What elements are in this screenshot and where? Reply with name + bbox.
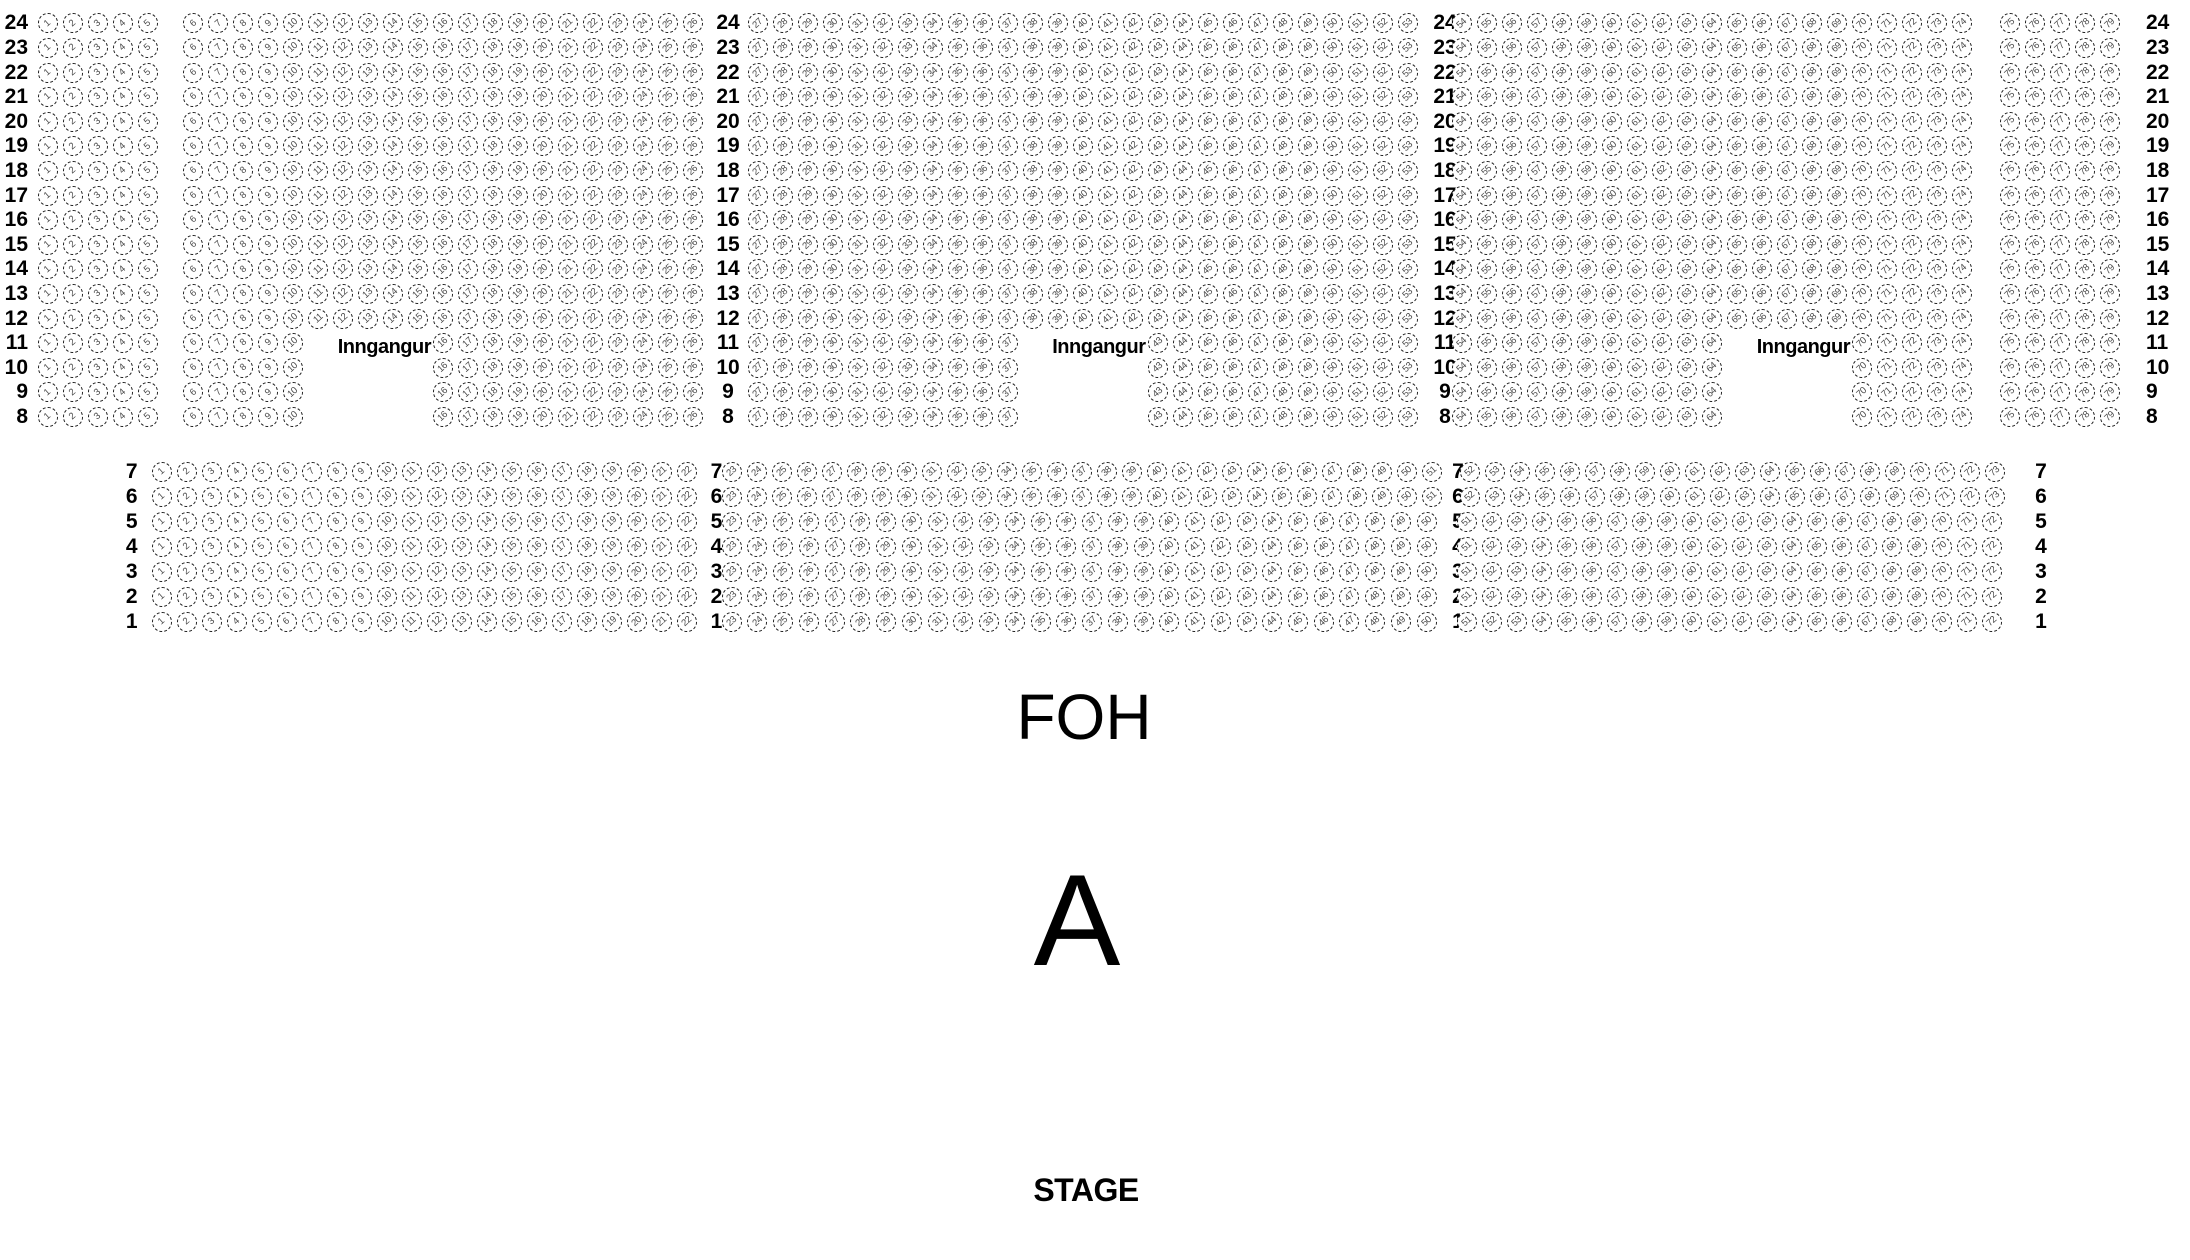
seat[interactable]: 13 [358, 136, 378, 156]
seat[interactable]: 70 [1852, 259, 1872, 279]
seat[interactable]: 40 [1073, 259, 1093, 279]
seat[interactable]: 79 [2100, 63, 2120, 83]
seat[interactable]: 42 [1123, 136, 1143, 156]
seat[interactable]: 53 [1398, 161, 1418, 181]
seat[interactable]: 28 [773, 309, 793, 329]
seat[interactable]: 26 [799, 537, 819, 557]
seat[interactable]: 71 [1957, 562, 1977, 582]
seat[interactable]: 25 [658, 186, 678, 206]
seat[interactable]: 16 [527, 587, 547, 607]
seat[interactable]: 61 [1627, 63, 1647, 83]
seat[interactable]: 68 [1802, 136, 1822, 156]
seat[interactable]: 68 [1882, 562, 1902, 582]
seat[interactable]: 77 [2050, 161, 2070, 181]
seat[interactable]: 55 [1557, 537, 1577, 557]
seat[interactable]: 41 [1098, 38, 1118, 58]
seat[interactable]: 4 [113, 235, 133, 255]
seat[interactable]: 30 [902, 587, 922, 607]
seat[interactable]: 49 [1298, 161, 1318, 181]
seat[interactable]: 76 [2025, 235, 2045, 255]
seat[interactable]: 71 [1957, 612, 1977, 632]
seat[interactable]: 5 [252, 562, 272, 582]
seat[interactable]: 59 [1635, 487, 1655, 507]
seat[interactable]: 19 [508, 259, 528, 279]
seat[interactable]: 2 [63, 358, 83, 378]
seat[interactable]: 25 [658, 382, 678, 402]
seat[interactable]: 45 [1198, 186, 1218, 206]
seat[interactable]: 20 [533, 161, 553, 181]
seat[interactable]: 6 [277, 562, 297, 582]
seat[interactable]: 61 [1685, 487, 1705, 507]
seat[interactable]: 6 [183, 38, 203, 58]
seat[interactable]: 59 [1577, 87, 1597, 107]
seat[interactable]: 3 [202, 562, 222, 582]
seat[interactable]: 24 [633, 358, 653, 378]
seat[interactable]: 55 [1477, 87, 1497, 107]
seat[interactable]: 51 [1457, 537, 1477, 557]
seat[interactable]: 28 [847, 462, 867, 482]
seat[interactable]: 38 [1108, 562, 1128, 582]
seat[interactable]: 67 [1777, 309, 1797, 329]
seat[interactable]: 51 [1348, 284, 1368, 304]
seat[interactable]: 10 [283, 63, 303, 83]
seat[interactable]: 33 [898, 382, 918, 402]
seat[interactable]: 16 [433, 407, 453, 427]
seat[interactable]: 56 [1502, 358, 1522, 378]
seat[interactable]: 20 [533, 63, 553, 83]
seat[interactable]: 77 [2050, 235, 2070, 255]
seat[interactable]: 37 [998, 382, 1018, 402]
seat[interactable]: 6 [183, 235, 203, 255]
seat[interactable]: 73 [1927, 309, 1947, 329]
seat[interactable]: 5 [138, 358, 158, 378]
seat[interactable]: 5 [138, 284, 158, 304]
seat[interactable]: 24 [633, 333, 653, 353]
seat[interactable]: 70 [1932, 587, 1952, 607]
seat[interactable]: 7 [208, 112, 228, 132]
seat[interactable]: 38 [1023, 136, 1043, 156]
seat[interactable]: 2 [177, 512, 197, 532]
seat[interactable]: 34 [923, 407, 943, 427]
seat[interactable]: 10 [283, 186, 303, 206]
seat[interactable]: 31 [848, 259, 868, 279]
seat[interactable]: 27 [825, 512, 845, 532]
seat[interactable]: 50 [1397, 487, 1417, 507]
seat[interactable]: 5 [138, 112, 158, 132]
seat[interactable]: 77 [2050, 333, 2070, 353]
seat[interactable]: 39 [1122, 487, 1142, 507]
seat[interactable]: 44 [1173, 63, 1193, 83]
seat[interactable]: 19 [508, 87, 528, 107]
seat[interactable]: 79 [2100, 382, 2120, 402]
seat[interactable]: 56 [1582, 587, 1602, 607]
seat[interactable]: 55 [1477, 407, 1497, 427]
seat[interactable]: 65 [1727, 284, 1747, 304]
seat[interactable]: 11 [308, 38, 328, 58]
seat[interactable]: 9 [352, 487, 372, 507]
seat[interactable]: 1 [38, 13, 58, 33]
seat[interactable]: 24 [633, 38, 653, 58]
seat[interactable]: 65 [1727, 136, 1747, 156]
seat[interactable]: 23 [608, 13, 628, 33]
seat[interactable]: 63 [1677, 13, 1697, 33]
seat[interactable]: 57 [1607, 512, 1627, 532]
seat[interactable]: 15 [502, 612, 522, 632]
seat[interactable]: 29 [798, 382, 818, 402]
seat[interactable]: 41 [1185, 512, 1205, 532]
seat[interactable]: 48 [1273, 259, 1293, 279]
seat[interactable]: 34 [997, 462, 1017, 482]
seat[interactable]: 59 [1657, 612, 1677, 632]
seat[interactable]: 9 [352, 462, 372, 482]
seat[interactable]: 72 [1902, 186, 1922, 206]
seat[interactable]: 36 [973, 87, 993, 107]
seat[interactable]: 61 [1685, 462, 1705, 482]
seat[interactable]: 14 [383, 161, 403, 181]
seat[interactable]: 44 [1262, 512, 1282, 532]
seat[interactable]: 22 [583, 63, 603, 83]
seat[interactable]: 16 [527, 462, 547, 482]
seat[interactable]: 26 [683, 186, 703, 206]
seat[interactable]: 53 [1398, 186, 1418, 206]
seat[interactable]: 78 [2075, 112, 2095, 132]
seat[interactable]: 10 [283, 235, 303, 255]
seat[interactable]: 48 [1273, 38, 1293, 58]
seat[interactable]: 7 [208, 235, 228, 255]
seat[interactable]: 58 [1552, 259, 1572, 279]
seat[interactable]: 70 [1852, 112, 1872, 132]
seat[interactable]: 79 [2100, 235, 2120, 255]
seat[interactable]: 62 [1652, 13, 1672, 33]
seat[interactable]: 13 [358, 309, 378, 329]
seat[interactable]: 39 [1048, 186, 1068, 206]
seat[interactable]: 29 [798, 309, 818, 329]
seat[interactable]: 46 [1223, 210, 1243, 230]
seat[interactable]: 24 [633, 13, 653, 33]
seat[interactable]: 49 [1298, 210, 1318, 230]
seat[interactable]: 67 [1857, 562, 1877, 582]
seat[interactable]: 30 [823, 407, 843, 427]
seat[interactable]: 66 [1752, 235, 1772, 255]
seat[interactable]: 47 [1248, 112, 1268, 132]
seat[interactable]: 45 [1198, 38, 1218, 58]
seat[interactable]: 69 [1885, 487, 1905, 507]
seat[interactable]: 1 [38, 186, 58, 206]
seat[interactable]: 60 [1682, 537, 1702, 557]
seat[interactable]: 12 [333, 210, 353, 230]
seat[interactable]: 10 [377, 562, 397, 582]
seat[interactable]: 77 [2050, 382, 2070, 402]
seat[interactable]: 4 [113, 284, 133, 304]
seat[interactable]: 64 [1702, 259, 1722, 279]
seat[interactable]: 14 [383, 210, 403, 230]
seat[interactable]: 12 [427, 537, 447, 557]
seat[interactable]: 44 [1173, 186, 1193, 206]
seat[interactable]: 61 [1627, 382, 1647, 402]
seat[interactable]: 54 [1452, 161, 1472, 181]
seat[interactable]: 56 [1582, 512, 1602, 532]
seat[interactable]: 61 [1707, 512, 1727, 532]
seat[interactable]: 3 [88, 112, 108, 132]
seat[interactable]: 58 [1552, 407, 1572, 427]
seat[interactable]: 55 [1557, 562, 1577, 582]
seat[interactable]: 8 [233, 87, 253, 107]
seat[interactable]: 53 [1398, 333, 1418, 353]
seat[interactable]: 57 [1527, 358, 1547, 378]
seat[interactable]: 62 [1732, 562, 1752, 582]
seat[interactable]: 60 [1602, 112, 1622, 132]
seat[interactable]: 69 [1827, 235, 1847, 255]
seat[interactable]: 32 [873, 13, 893, 33]
seat[interactable]: 71 [1877, 333, 1897, 353]
seat[interactable]: 34 [1005, 512, 1025, 532]
seat[interactable]: 66 [1752, 13, 1772, 33]
seat[interactable]: 67 [1777, 235, 1797, 255]
seat[interactable]: 51 [1457, 512, 1477, 532]
seat[interactable]: 54 [1452, 63, 1472, 83]
seat[interactable]: 51 [1348, 63, 1368, 83]
seat[interactable]: 28 [773, 333, 793, 353]
seat[interactable]: 65 [1807, 562, 1827, 582]
seat[interactable]: 56 [1560, 487, 1580, 507]
seat[interactable]: 58 [1552, 13, 1572, 33]
seat[interactable]: 16 [433, 38, 453, 58]
seat[interactable]: 39 [1048, 161, 1068, 181]
seat[interactable]: 53 [1398, 210, 1418, 230]
seat[interactable]: 1 [38, 333, 58, 353]
seat[interactable]: 28 [773, 13, 793, 33]
seat[interactable]: 78 [2075, 407, 2095, 427]
seat[interactable]: 45 [1198, 87, 1218, 107]
seat[interactable]: 59 [1577, 210, 1597, 230]
seat[interactable]: 12 [333, 259, 353, 279]
seat[interactable]: 9 [258, 112, 278, 132]
seat[interactable]: 14 [383, 13, 403, 33]
seat[interactable]: 39 [1048, 284, 1068, 304]
seat[interactable]: 51 [1348, 136, 1368, 156]
seat[interactable]: 35 [948, 87, 968, 107]
seat[interactable]: 67 [1857, 587, 1877, 607]
seat[interactable]: 41 [1185, 537, 1205, 557]
seat[interactable]: 33 [972, 462, 992, 482]
seat[interactable]: 10 [377, 512, 397, 532]
seat[interactable]: 42 [1211, 537, 1231, 557]
seat[interactable]: 17 [458, 309, 478, 329]
seat[interactable]: 45 [1288, 612, 1308, 632]
seat[interactable]: 44 [1262, 612, 1282, 632]
seat[interactable]: 22 [583, 407, 603, 427]
seat[interactable]: 72 [1902, 38, 1922, 58]
seat[interactable]: 61 [1707, 537, 1727, 557]
seat[interactable]: 20 [533, 87, 553, 107]
seat[interactable]: 35 [1031, 562, 1051, 582]
seat[interactable]: 32 [873, 38, 893, 58]
seat[interactable]: 28 [850, 537, 870, 557]
seat[interactable]: 23 [608, 161, 628, 181]
seat[interactable]: 54 [1452, 382, 1472, 402]
seat[interactable]: 2 [63, 382, 83, 402]
seat[interactable]: 47 [1248, 161, 1268, 181]
seat[interactable]: 13 [452, 487, 472, 507]
seat[interactable]: 59 [1657, 537, 1677, 557]
seat[interactable]: 23 [722, 512, 742, 532]
seat[interactable]: 16 [433, 186, 453, 206]
seat[interactable]: 20 [533, 309, 553, 329]
seat[interactable]: 19 [508, 358, 528, 378]
seat[interactable]: 1 [38, 284, 58, 304]
seat[interactable]: 79 [2100, 112, 2120, 132]
seat[interactable]: 32 [873, 210, 893, 230]
seat[interactable]: 15 [502, 537, 522, 557]
seat[interactable]: 46 [1223, 333, 1243, 353]
seat[interactable]: 19 [602, 562, 622, 582]
seat[interactable]: 56 [1502, 38, 1522, 58]
seat[interactable]: 19 [508, 382, 528, 402]
seat[interactable]: 12 [333, 112, 353, 132]
seat[interactable]: 16 [433, 309, 453, 329]
seat[interactable]: 56 [1502, 13, 1522, 33]
seat[interactable]: 17 [458, 38, 478, 58]
seat[interactable]: 17 [458, 235, 478, 255]
seat[interactable]: 47 [1339, 587, 1359, 607]
seat[interactable]: 14 [383, 186, 403, 206]
seat[interactable]: 55 [1477, 63, 1497, 83]
seat[interactable]: 44 [1173, 333, 1193, 353]
seat[interactable]: 49 [1298, 358, 1318, 378]
seat[interactable]: 26 [683, 284, 703, 304]
seat[interactable]: 71 [1877, 382, 1897, 402]
seat[interactable]: 64 [1760, 487, 1780, 507]
seat[interactable]: 43 [1148, 235, 1168, 255]
seat[interactable]: 28 [847, 487, 867, 507]
seat[interactable]: 46 [1223, 309, 1243, 329]
seat[interactable]: 64 [1702, 63, 1722, 83]
seat[interactable]: 10 [283, 284, 303, 304]
seat[interactable]: 71 [1877, 136, 1897, 156]
seat[interactable]: 65 [1727, 112, 1747, 132]
seat[interactable]: 24 [633, 407, 653, 427]
seat[interactable]: 23 [608, 87, 628, 107]
seat[interactable]: 61 [1627, 186, 1647, 206]
seat[interactable]: 8 [233, 161, 253, 181]
seat[interactable]: 8 [233, 136, 253, 156]
seat[interactable]: 25 [773, 612, 793, 632]
seat[interactable]: 2 [63, 112, 83, 132]
seat[interactable]: 22 [583, 87, 603, 107]
seat[interactable]: 3 [88, 13, 108, 33]
seat[interactable]: 68 [1802, 13, 1822, 33]
seat[interactable]: 64 [1702, 87, 1722, 107]
seat[interactable]: 2 [63, 87, 83, 107]
seat[interactable]: 66 [1832, 587, 1852, 607]
seat[interactable]: 38 [1023, 161, 1043, 181]
seat[interactable]: 7 [208, 407, 228, 427]
seat[interactable]: 74 [1952, 407, 1972, 427]
seat[interactable]: 4 [113, 87, 133, 107]
seat[interactable]: 50 [1417, 537, 1437, 557]
seat[interactable]: 16 [527, 562, 547, 582]
seat[interactable]: 73 [1985, 462, 2005, 482]
seat[interactable]: 72 [1902, 112, 1922, 132]
seat[interactable]: 42 [1123, 235, 1143, 255]
seat[interactable]: 55 [1477, 259, 1497, 279]
seat[interactable]: 54 [1532, 612, 1552, 632]
seat[interactable]: 34 [923, 63, 943, 83]
seat[interactable]: 13 [358, 210, 378, 230]
seat[interactable]: 29 [876, 612, 896, 632]
seat[interactable]: 30 [902, 537, 922, 557]
seat[interactable]: 29 [876, 537, 896, 557]
seat[interactable]: 37 [998, 309, 1018, 329]
seat[interactable]: 45 [1198, 358, 1218, 378]
seat[interactable]: 1 [38, 136, 58, 156]
seat[interactable]: 51 [1348, 13, 1368, 33]
seat[interactable]: 60 [1602, 210, 1622, 230]
seat[interactable]: 43 [1148, 333, 1168, 353]
seat[interactable]: 5 [138, 309, 158, 329]
seat[interactable]: 21 [558, 186, 578, 206]
seat[interactable]: 43 [1148, 161, 1168, 181]
seat[interactable]: 47 [1248, 382, 1268, 402]
seat[interactable]: 26 [683, 112, 703, 132]
seat[interactable]: 42 [1211, 587, 1231, 607]
seat[interactable]: 75 [2000, 284, 2020, 304]
seat[interactable]: 62 [1652, 186, 1672, 206]
seat[interactable]: 76 [2025, 333, 2045, 353]
seat[interactable]: 61 [1627, 259, 1647, 279]
seat[interactable]: 7 [302, 462, 322, 482]
seat[interactable]: 72 [1902, 309, 1922, 329]
seat[interactable]: 24 [633, 63, 653, 83]
seat[interactable]: 71 [1877, 235, 1897, 255]
seat[interactable]: 3 [88, 38, 108, 58]
seat[interactable]: 27 [822, 462, 842, 482]
seat[interactable]: 52 [1460, 462, 1480, 482]
seat[interactable]: 35 [948, 235, 968, 255]
seat[interactable]: 67 [1777, 161, 1797, 181]
seat[interactable]: 32 [873, 407, 893, 427]
seat[interactable]: 25 [658, 136, 678, 156]
seat[interactable]: 22 [677, 562, 697, 582]
seat[interactable]: 64 [1782, 512, 1802, 532]
seat[interactable]: 53 [1398, 284, 1418, 304]
seat[interactable]: 36 [1047, 462, 1067, 482]
seat[interactable]: 6 [183, 382, 203, 402]
seat[interactable]: 68 [1882, 537, 1902, 557]
seat[interactable]: 7 [302, 562, 322, 582]
seat[interactable]: 36 [973, 259, 993, 279]
seat[interactable]: 75 [2000, 161, 2020, 181]
seat[interactable]: 1 [38, 407, 58, 427]
seat[interactable]: 65 [1727, 87, 1747, 107]
seat[interactable]: 22 [583, 259, 603, 279]
seat[interactable]: 42 [1123, 186, 1143, 206]
seat[interactable]: 34 [923, 284, 943, 304]
seat[interactable]: 71 [1957, 537, 1977, 557]
seat[interactable]: 63 [1677, 382, 1697, 402]
seat[interactable]: 12 [333, 309, 353, 329]
seat[interactable]: 22 [583, 358, 603, 378]
seat[interactable]: 51 [1348, 333, 1368, 353]
seat[interactable]: 70 [1852, 382, 1872, 402]
seat[interactable]: 50 [1323, 38, 1343, 58]
seat[interactable]: 18 [577, 512, 597, 532]
seat[interactable]: 33 [898, 210, 918, 230]
seat[interactable]: 43 [1148, 13, 1168, 33]
seat[interactable]: 37 [998, 235, 1018, 255]
seat[interactable]: 27 [825, 612, 845, 632]
seat[interactable]: 13 [452, 537, 472, 557]
